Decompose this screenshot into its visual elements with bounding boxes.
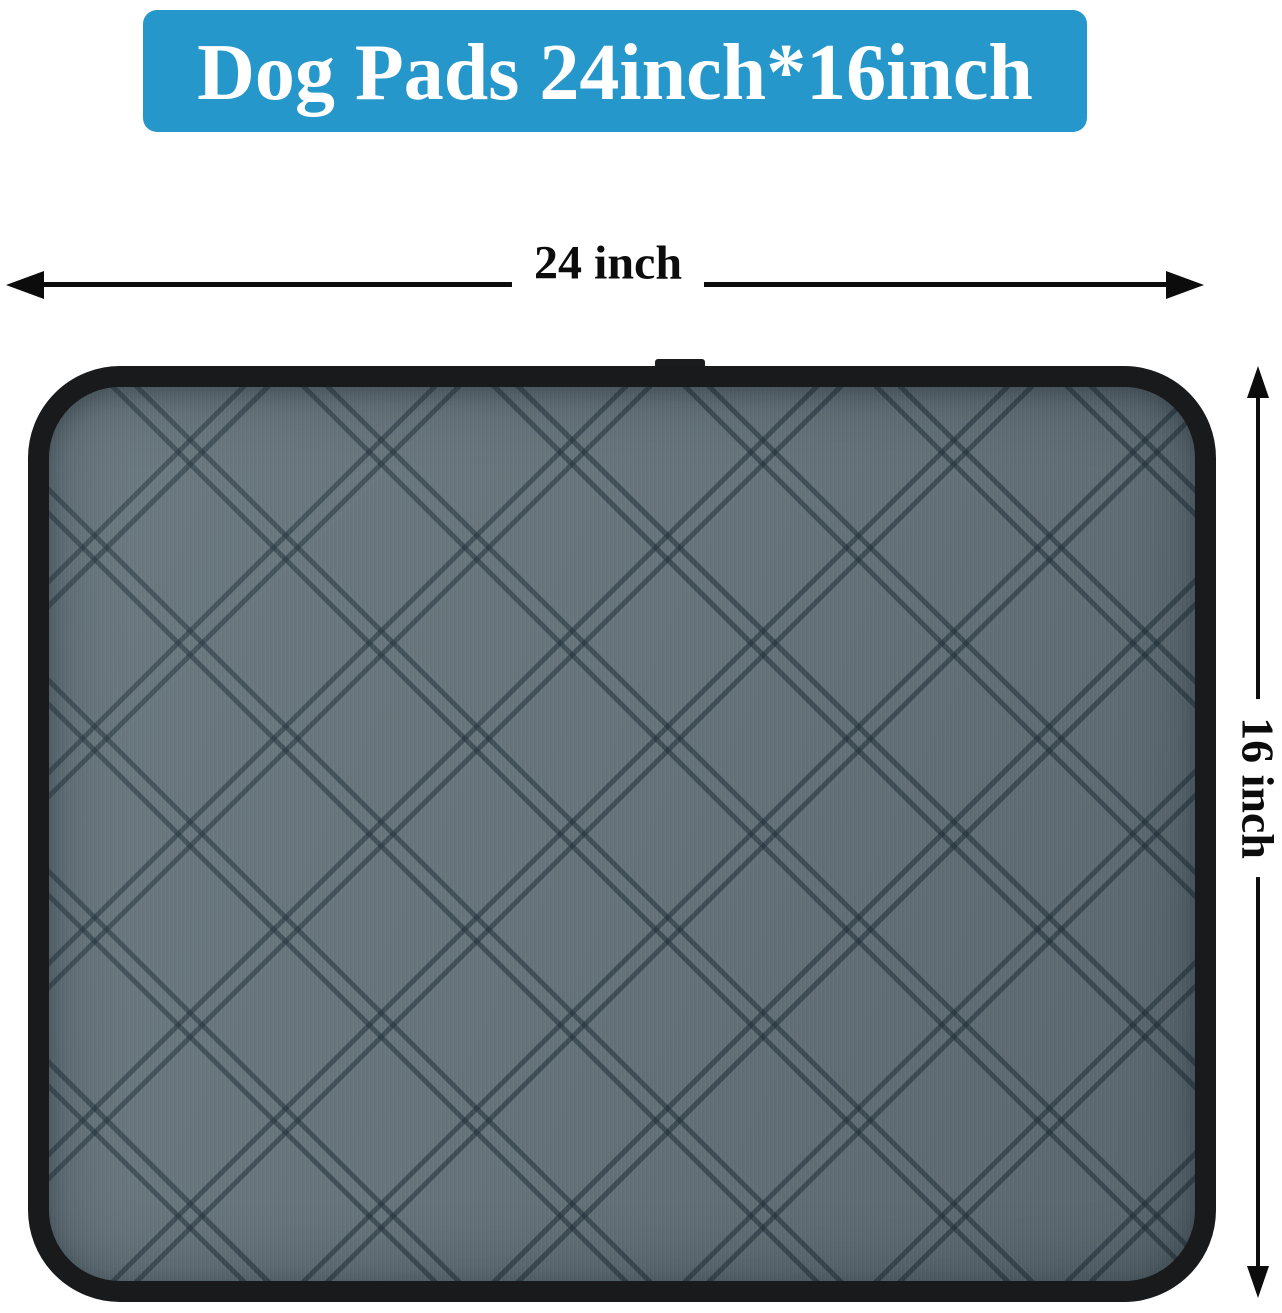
title-banner: Dog Pads 24inch*16inch: [143, 10, 1087, 132]
arrow-down-icon: [1247, 1266, 1269, 1298]
width-dimension-label: 24 inch: [512, 236, 704, 291]
product-image-canvas: Dog Pads 24inch*16inch 24 inch 16 inch: [0, 0, 1282, 1313]
height-dimension-label: 16 inch: [1232, 699, 1282, 877]
title-text: Dog Pads 24inch*16inch: [197, 29, 1033, 113]
dog-pad-photo: [28, 366, 1216, 1302]
arrow-right-icon: [1166, 271, 1204, 299]
